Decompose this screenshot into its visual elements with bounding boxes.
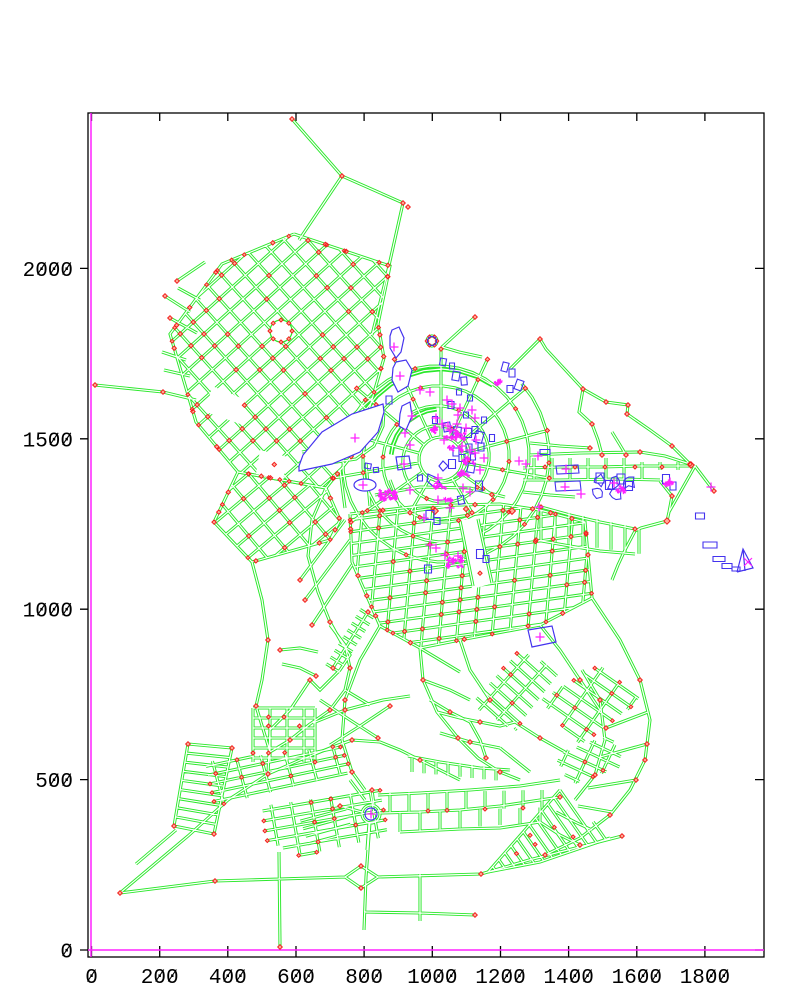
svg-text:800: 800 <box>345 967 383 990</box>
svg-text:600: 600 <box>277 967 315 990</box>
svg-text:1800: 1800 <box>680 967 730 990</box>
svg-text:500: 500 <box>35 771 73 794</box>
svg-text:1000: 1000 <box>23 601 73 624</box>
svg-text:1200: 1200 <box>475 967 525 990</box>
svg-text:0: 0 <box>85 967 98 990</box>
svg-text:2000: 2000 <box>23 260 73 283</box>
svg-text:0: 0 <box>60 942 73 965</box>
svg-text:200: 200 <box>141 967 179 990</box>
svg-text:1500: 1500 <box>23 430 73 453</box>
svg-text:1600: 1600 <box>612 967 662 990</box>
svg-text:400: 400 <box>209 967 247 990</box>
svg-text:1000: 1000 <box>407 967 457 990</box>
svg-text:1400: 1400 <box>543 967 593 990</box>
